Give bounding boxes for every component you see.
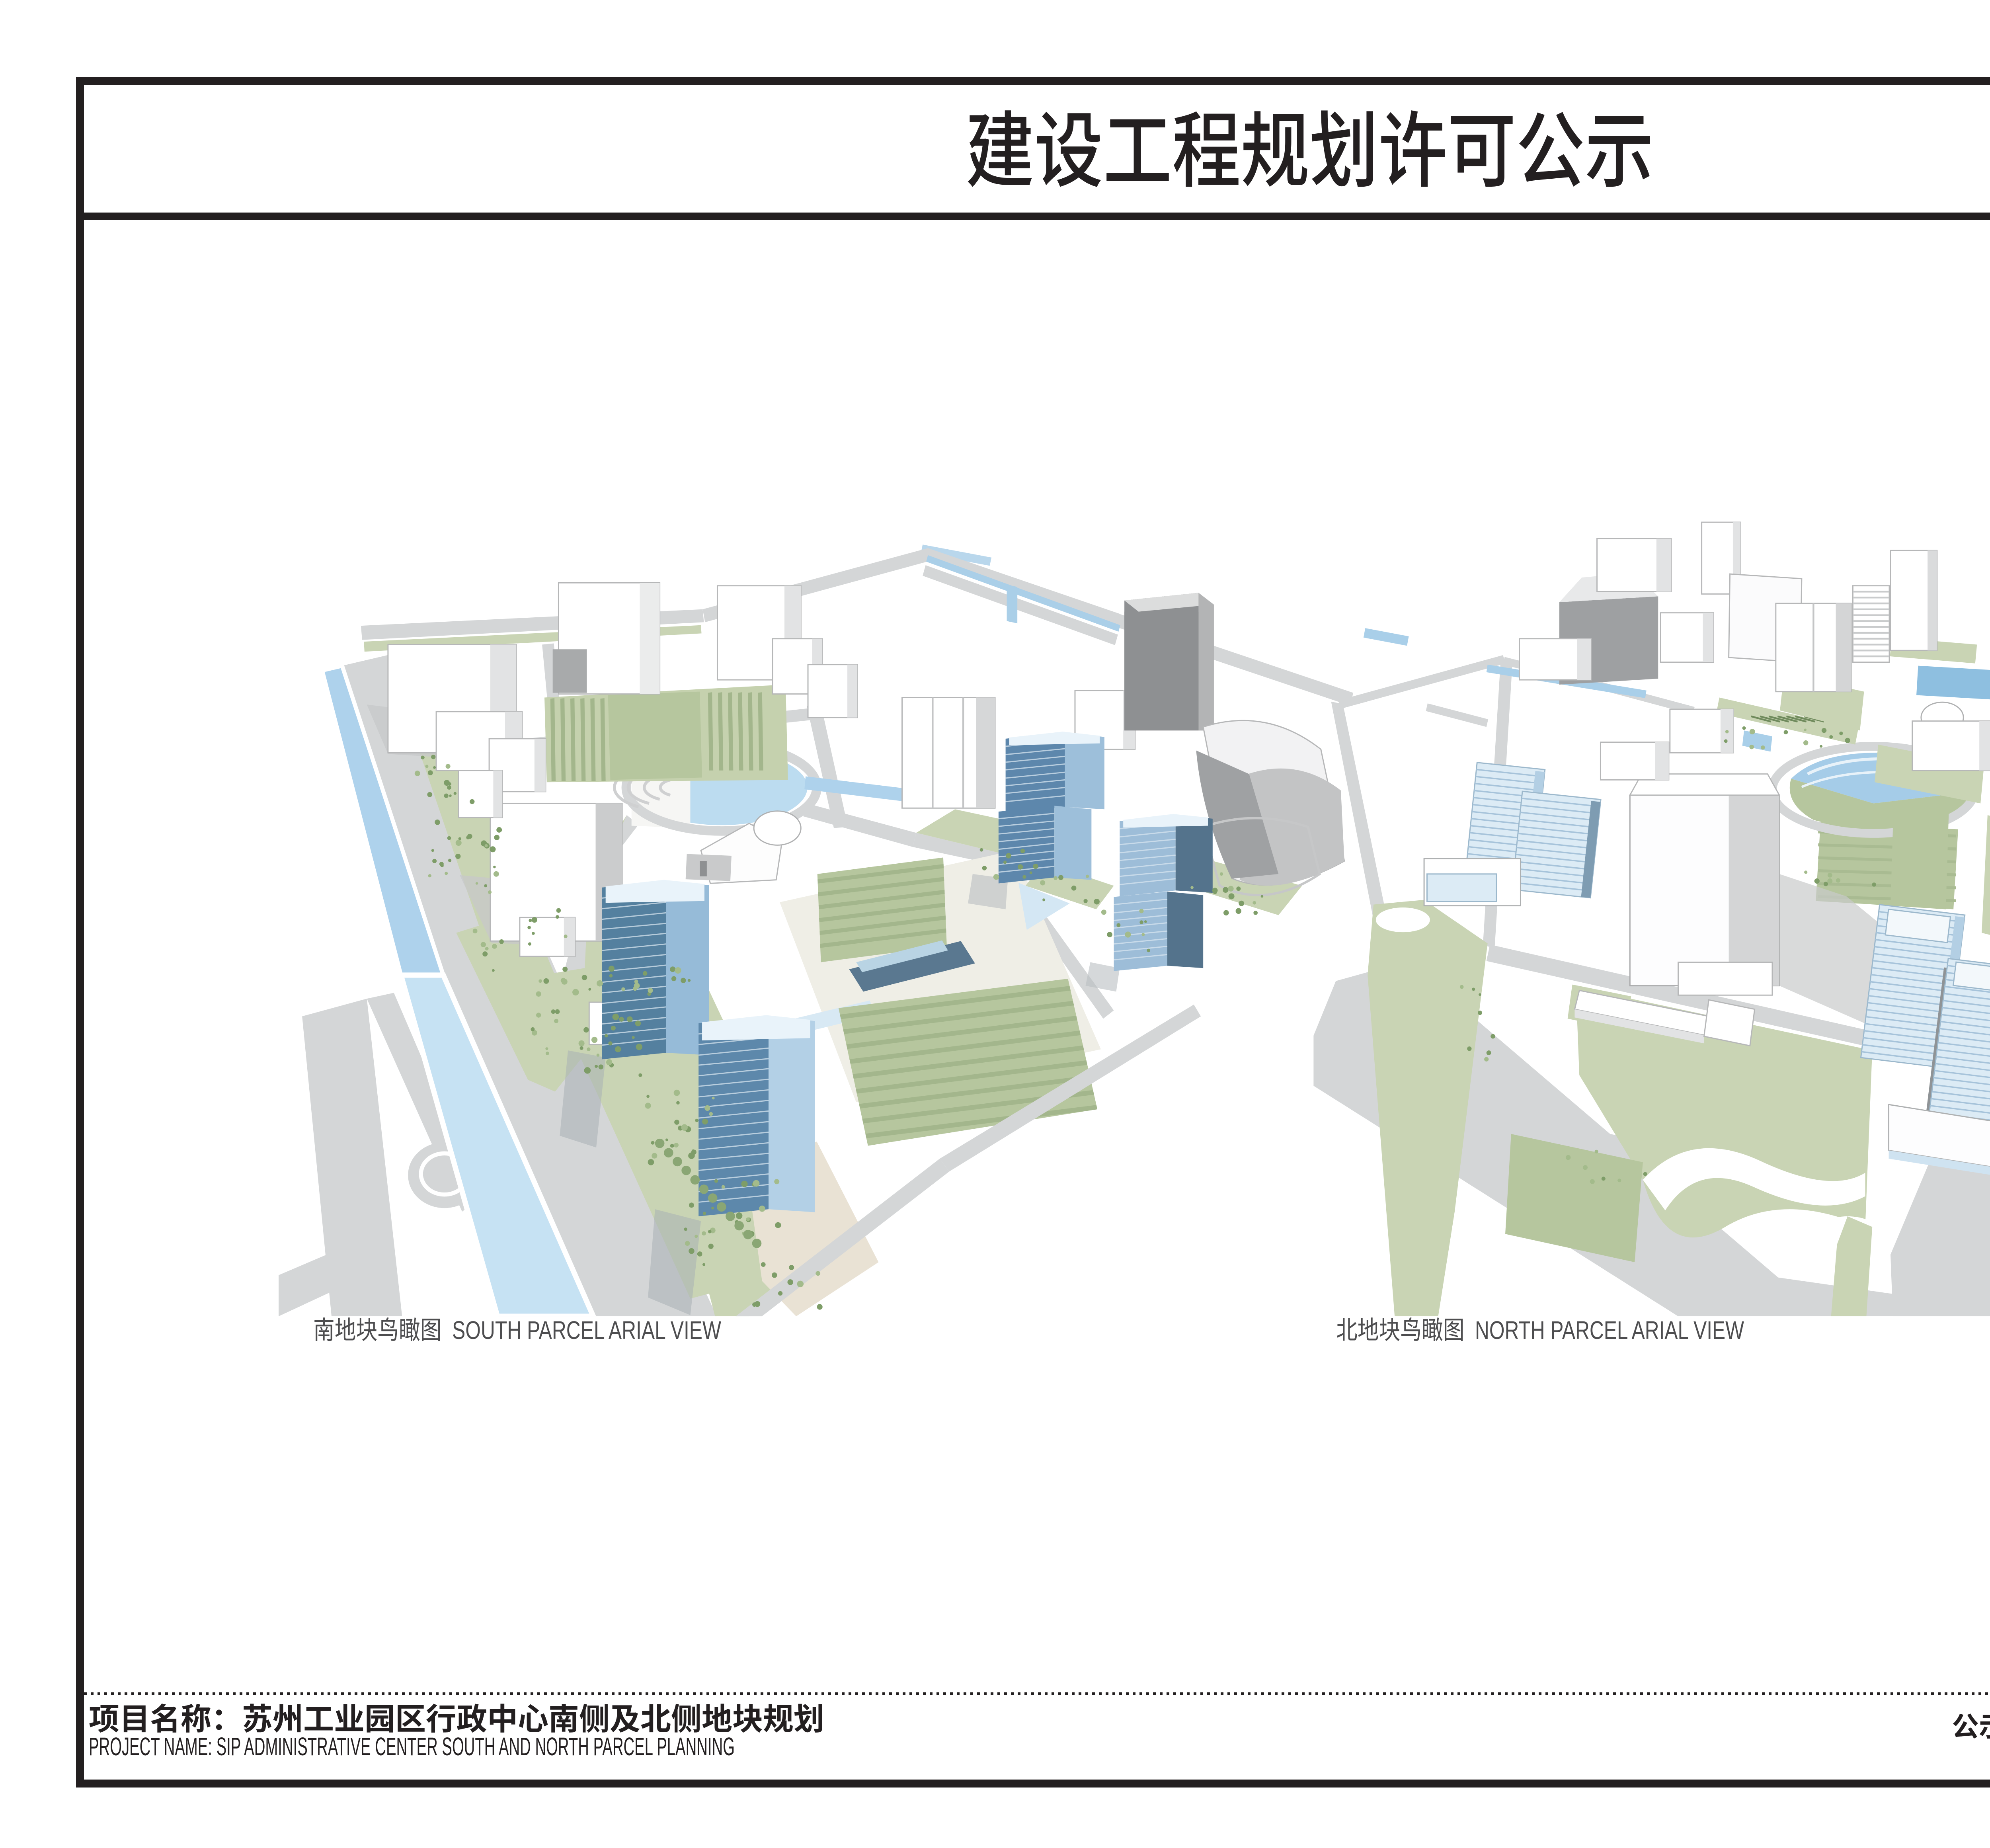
svg-text:PROJECT NAME: SIP ADMINISTRATI: PROJECT NAME: SIP ADMINISTRATIVE CENTER … (89, 1732, 735, 1761)
svg-text:NORTH PARCEL ARIAL VIEW: NORTH PARCEL ARIAL VIEW (1475, 1316, 1744, 1345)
svg-text:SOUTH PARCEL ARIAL VIEW: SOUTH PARCEL ARIAL VIEW (452, 1316, 721, 1345)
